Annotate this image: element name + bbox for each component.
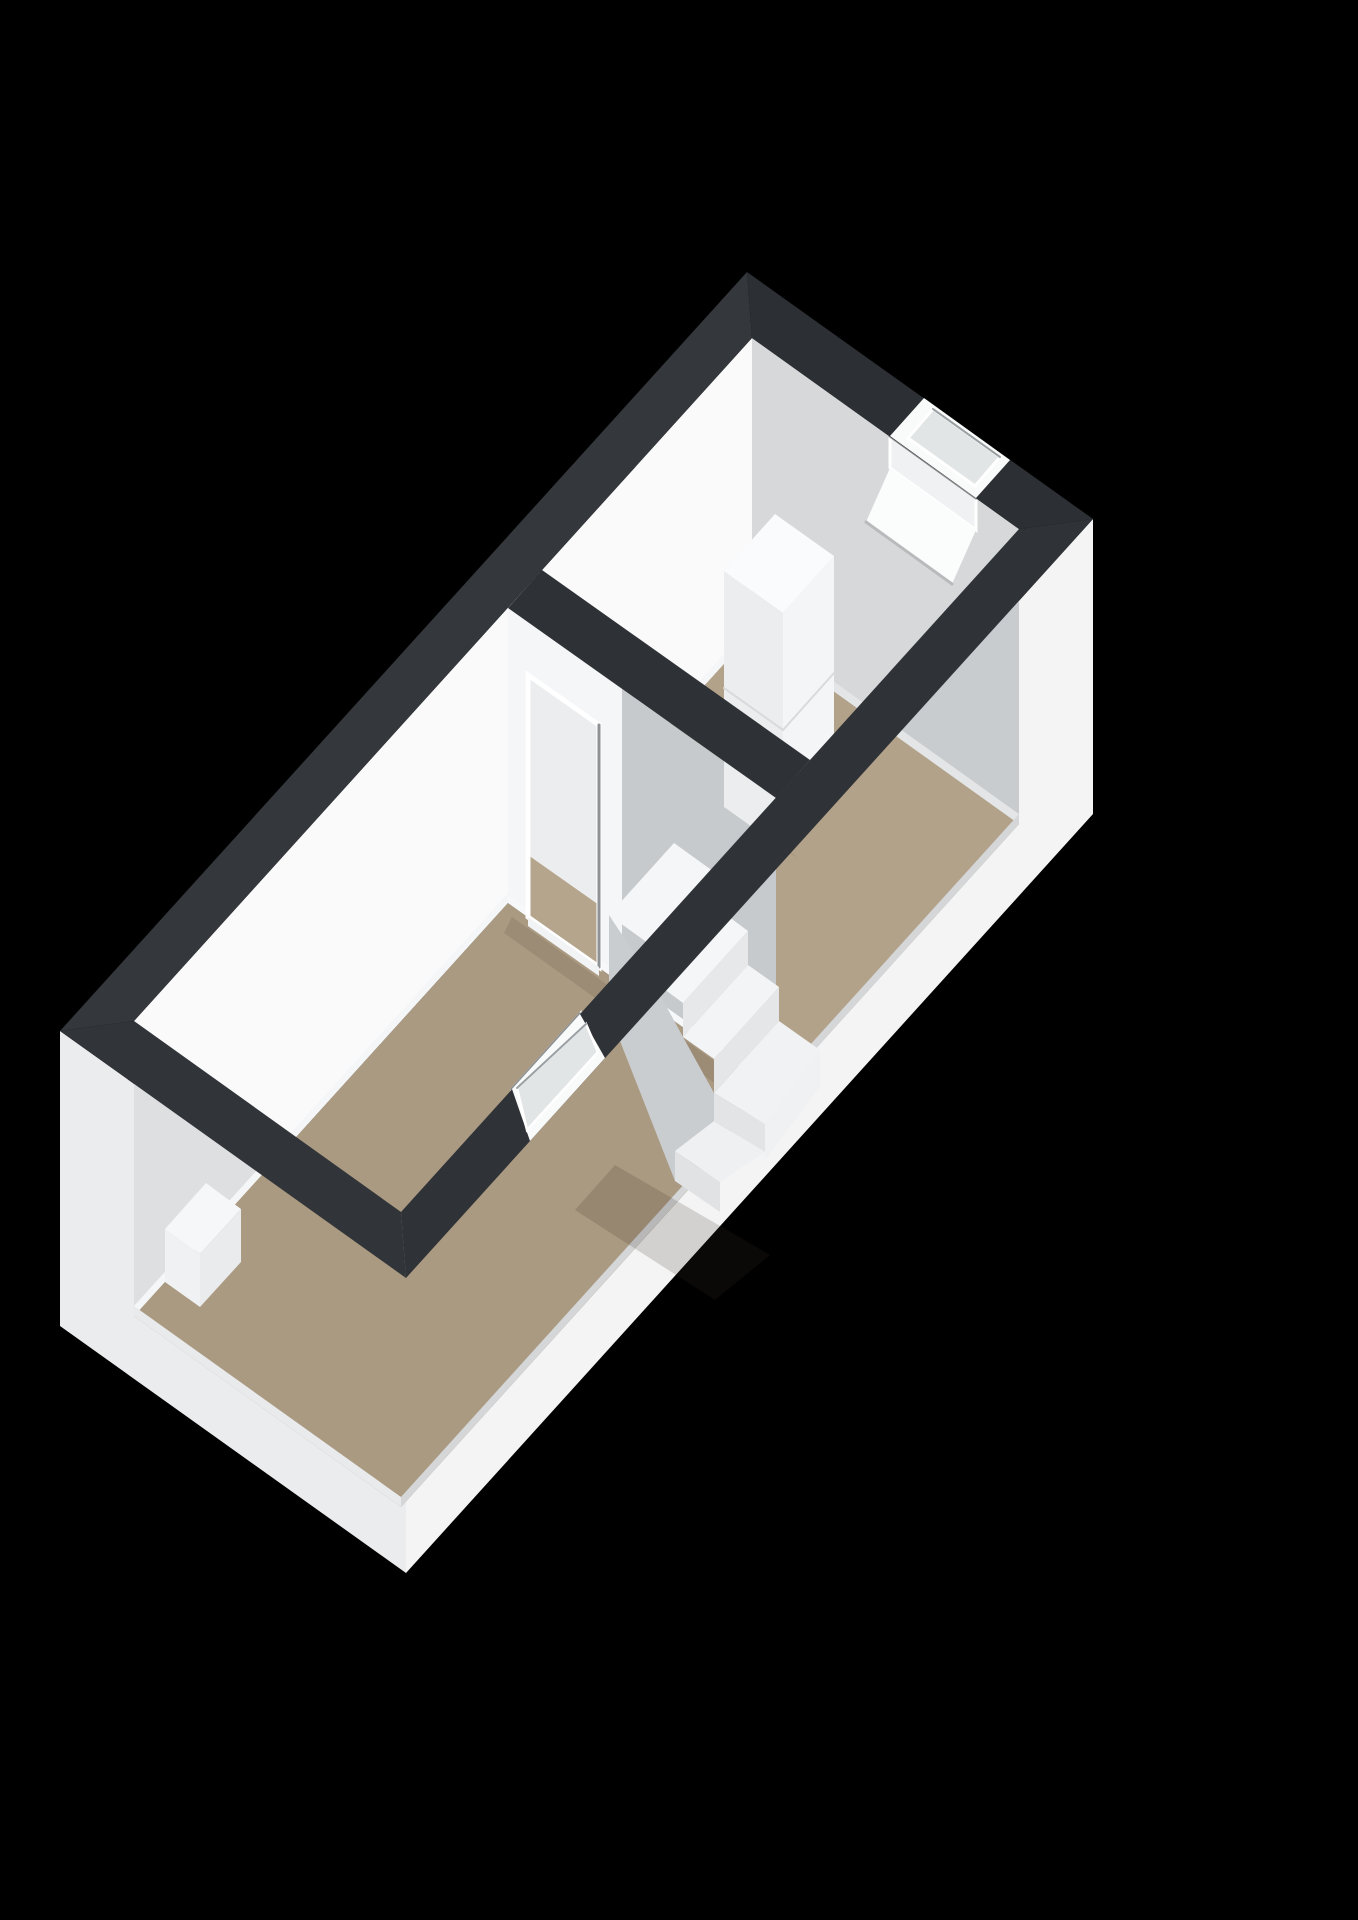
floorplan-stage (0, 0, 1358, 1920)
floorplan-3d-render (0, 0, 1358, 1920)
doorway (528, 675, 599, 976)
